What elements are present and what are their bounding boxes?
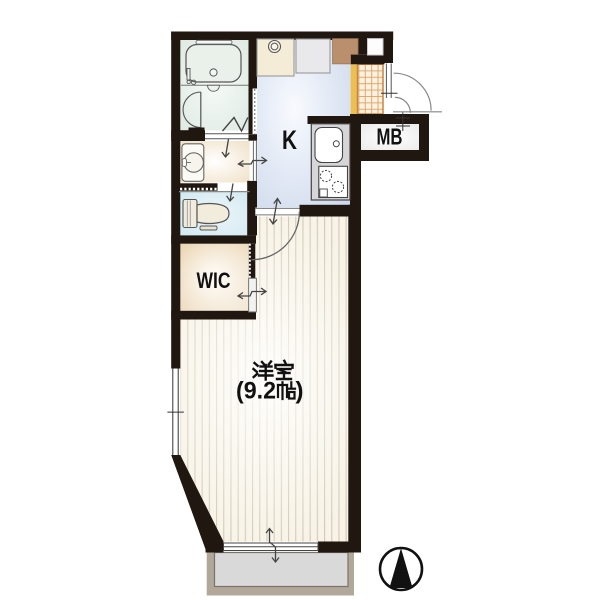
svg-text:): ) (296, 378, 304, 405)
svg-text:(9.2: (9.2 (236, 378, 276, 405)
svg-text:MB: MB (377, 124, 403, 150)
svg-text:WIC: WIC (197, 268, 231, 293)
svg-text:K: K (282, 125, 297, 155)
